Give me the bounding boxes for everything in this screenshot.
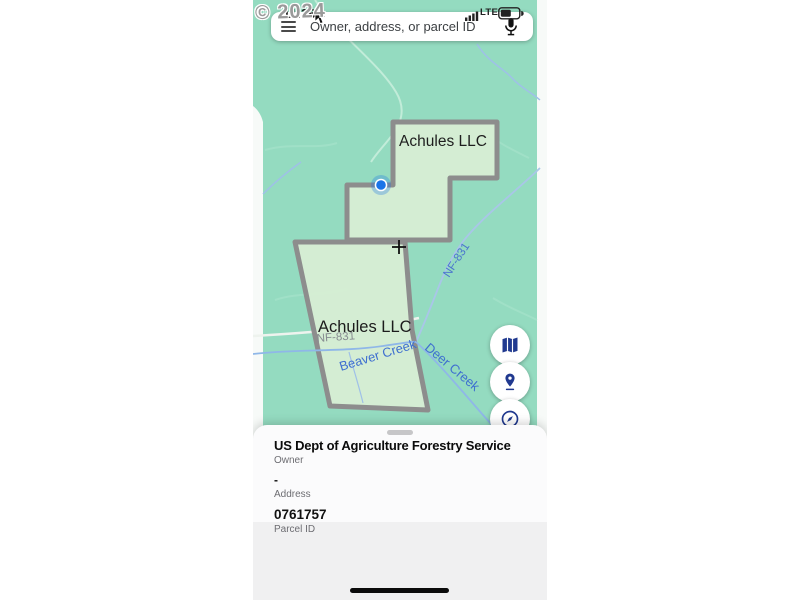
owner-label: Owner [274,455,534,466]
parcel-label-north: Achules LLC [399,133,487,150]
pin-drop-icon [500,372,520,392]
address-value: - [274,473,534,487]
sheet-drag-handle[interactable] [387,430,413,435]
parcel-id-value: 0761757 [274,507,534,522]
address-label: Address [274,489,534,500]
battery-icon [498,7,524,25]
parcel-id-label: Parcel ID [274,524,534,535]
map-type-button[interactable] [490,325,530,365]
phone-screenshot: Achules LLC Achules LLC NF-831 NF-831 Be… [253,0,547,600]
current-location-dot [371,175,391,195]
signal-bars-icon [465,8,479,26]
my-location-button[interactable] [490,362,530,402]
parcel-info-sheet[interactable]: US Dept of Agriculture Forestry Service … [253,425,547,600]
map-type-icon [500,335,520,355]
owner-value: US Dept of Agriculture Forestry Service [274,438,534,453]
screenshot-canvas: Achules LLC Achules LLC NF-831 NF-831 Be… [0,0,800,600]
photo-watermark: © 2024 [255,0,327,25]
network-type-label: LTE [480,7,498,18]
search-input[interactable]: Owner, address, or parcel ID [310,12,475,41]
home-indicator[interactable] [350,588,449,593]
